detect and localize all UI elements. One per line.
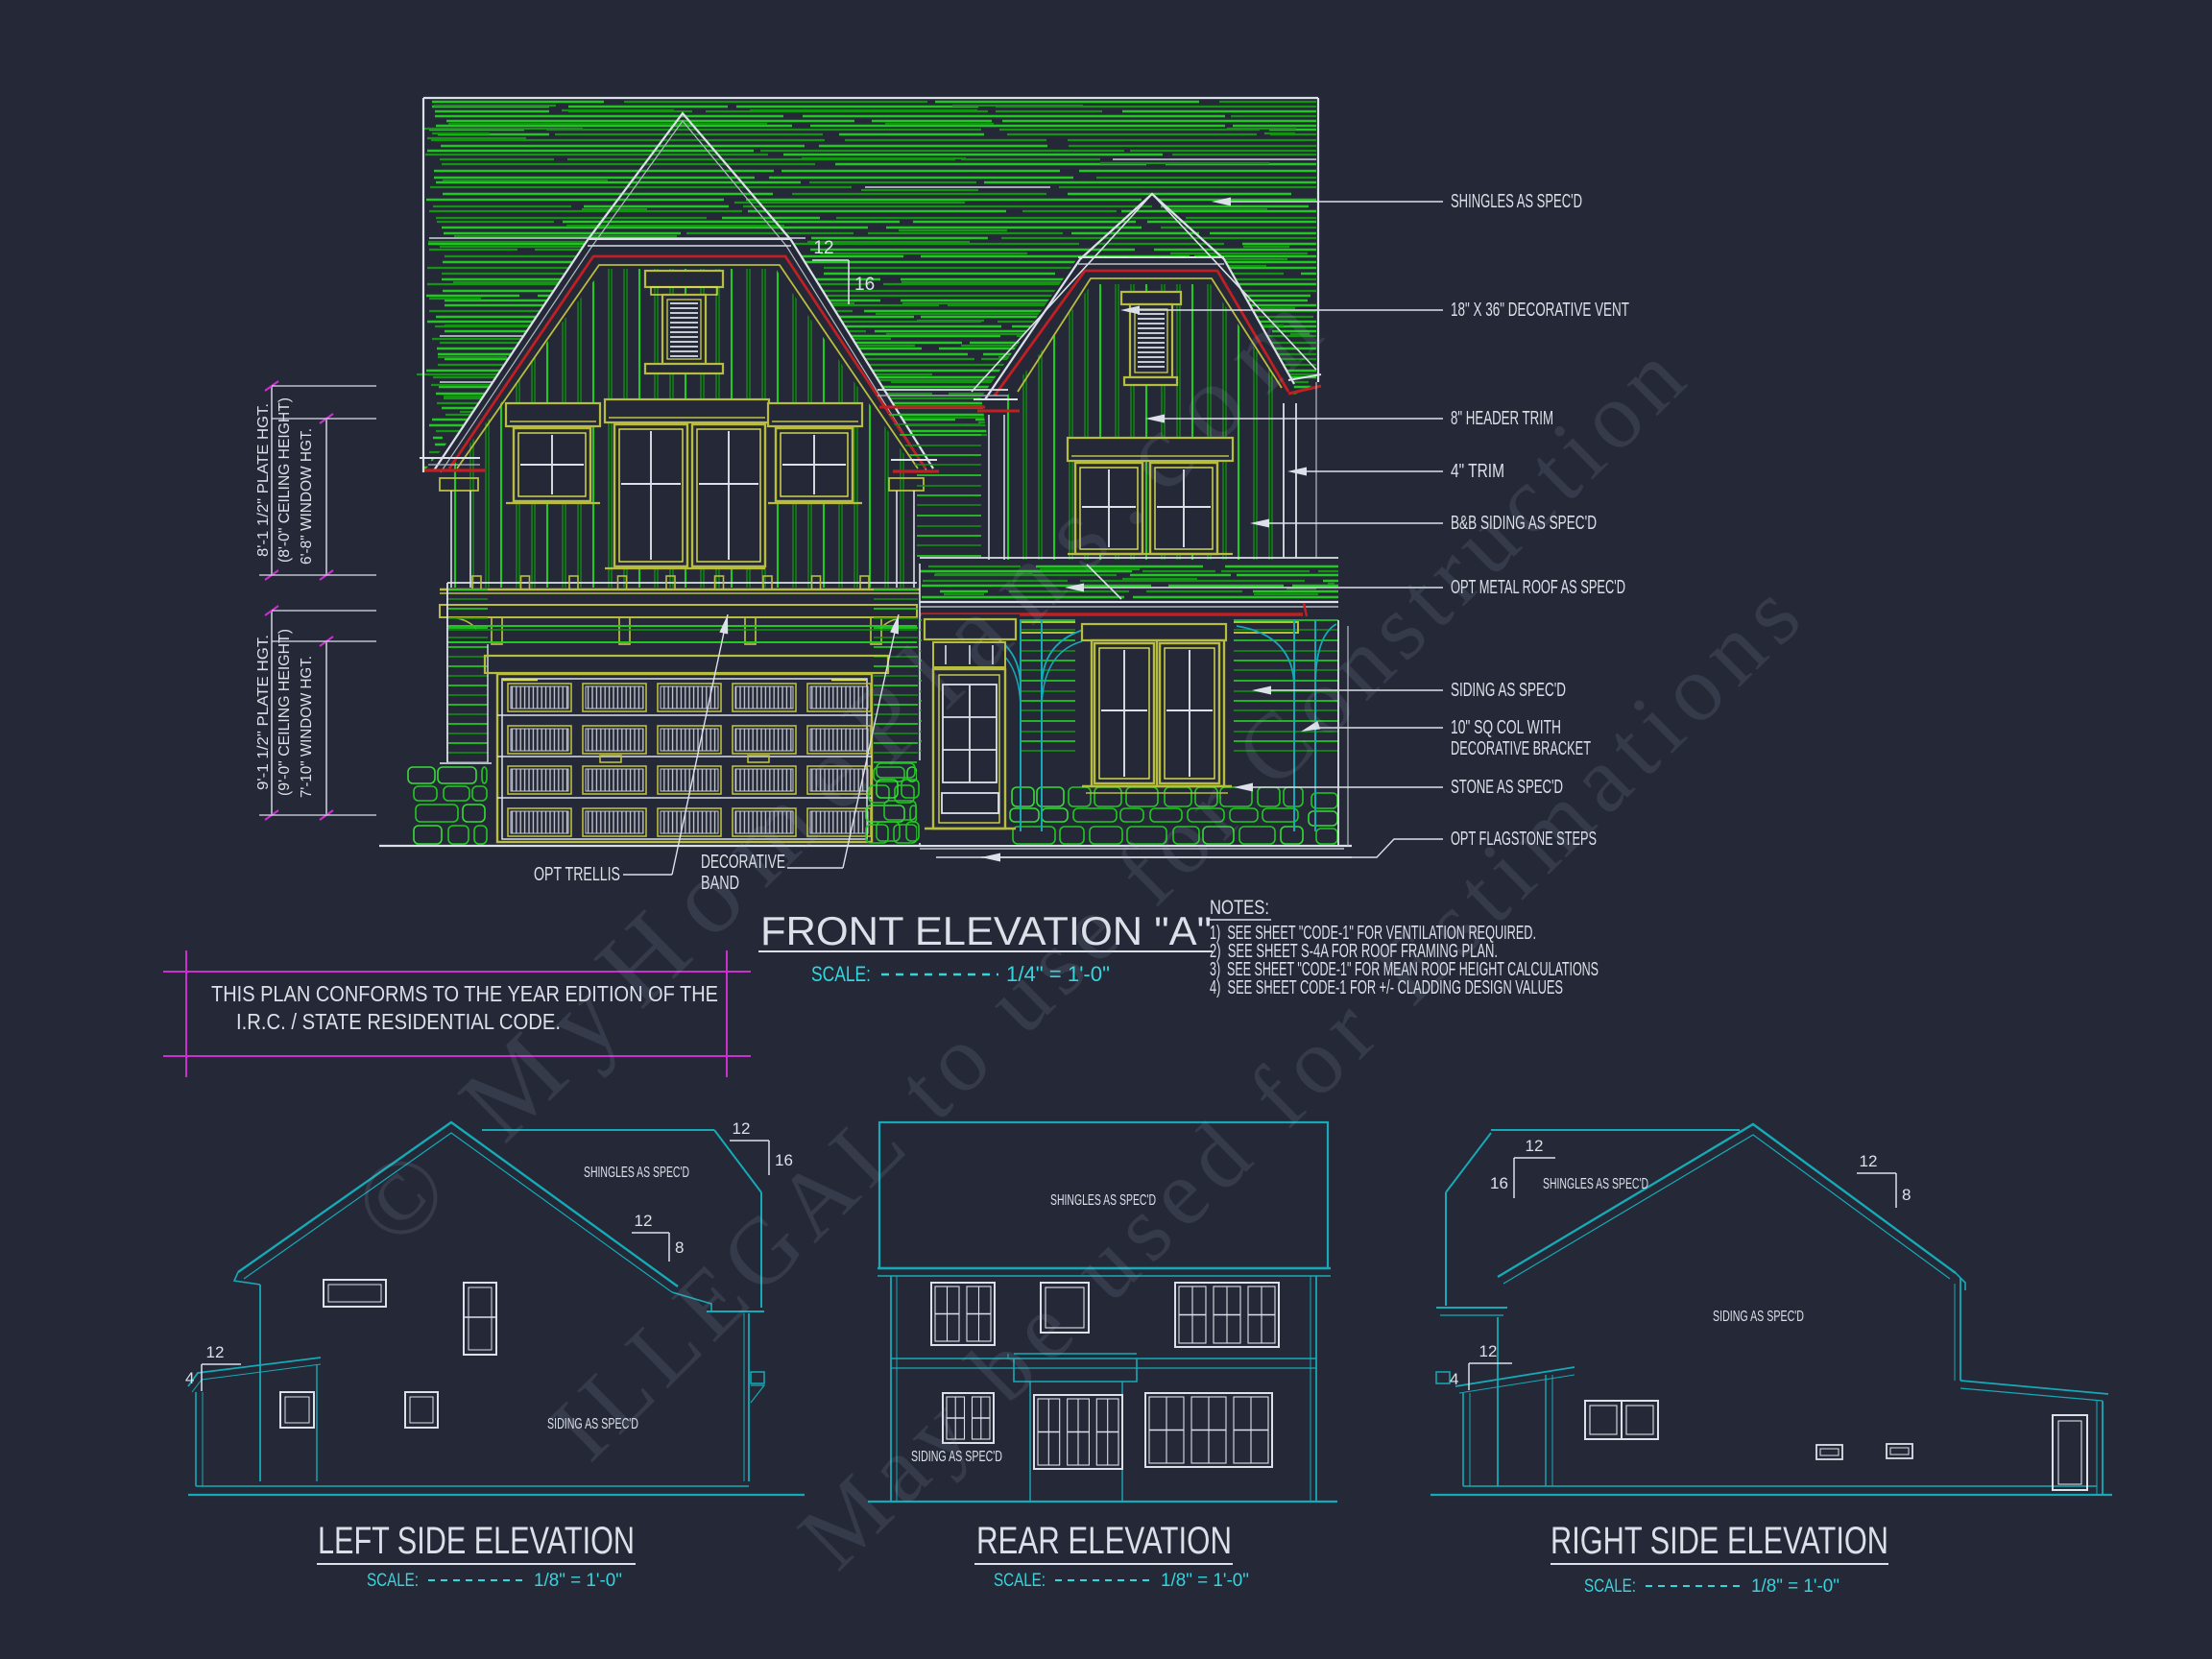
svg-text:(9'-0" CEILING HEIGHT): (9'-0" CEILING HEIGHT) xyxy=(276,629,293,796)
svg-text:8: 8 xyxy=(675,1238,684,1257)
svg-text:SIDING AS SPEC'D: SIDING AS SPEC'D xyxy=(1451,680,1566,701)
svg-text:NOTES:: NOTES: xyxy=(1210,897,1269,919)
svg-text:8: 8 xyxy=(1902,1186,1911,1204)
svg-text:18" X 36" DECORATIVE VENT: 18" X 36" DECORATIVE VENT xyxy=(1451,300,1629,321)
svg-text:REAR ELEVATION: REAR ELEVATION xyxy=(976,1520,1232,1562)
svg-text:12: 12 xyxy=(206,1343,225,1361)
svg-text:SHINGLES AS SPEC'D: SHINGLES AS SPEC'D xyxy=(1451,191,1582,212)
svg-text:7'-10" WINDOW HGT.: 7'-10" WINDOW HGT. xyxy=(299,656,315,798)
svg-text:1/8" = 1'-0": 1/8" = 1'-0" xyxy=(1751,1576,1839,1597)
svg-text:SCALE:: SCALE: xyxy=(994,1571,1046,1591)
svg-text:OPT TRELLIS: OPT TRELLIS xyxy=(534,864,620,885)
svg-text:SCALE:: SCALE: xyxy=(811,962,871,986)
svg-text:4: 4 xyxy=(1450,1370,1458,1388)
svg-text:SCALE:: SCALE: xyxy=(1584,1576,1636,1597)
svg-text:12: 12 xyxy=(635,1212,653,1230)
svg-text:LEFT SIDE ELEVATION: LEFT SIDE ELEVATION xyxy=(318,1520,635,1562)
svg-text:12: 12 xyxy=(813,238,833,258)
svg-text:12: 12 xyxy=(733,1119,751,1138)
svg-text:SHINGLES AS SPEC'D: SHINGLES AS SPEC'D xyxy=(584,1165,689,1181)
svg-text:SHINGLES AS SPEC'D: SHINGLES AS SPEC'D xyxy=(1543,1176,1648,1192)
svg-text:6'-8" WINDOW HGT.: 6'-8" WINDOW HGT. xyxy=(299,428,315,565)
svg-text:1/8" = 1'-0": 1/8" = 1'-0" xyxy=(1161,1571,1249,1591)
svg-text:16: 16 xyxy=(1490,1174,1508,1192)
svg-text:RIGHT SIDE ELEVATION: RIGHT SIDE ELEVATION xyxy=(1551,1520,1888,1562)
svg-text:SIDING AS SPEC'D: SIDING AS SPEC'D xyxy=(1713,1309,1804,1325)
svg-text:12: 12 xyxy=(1860,1152,1878,1170)
svg-text:12: 12 xyxy=(1526,1137,1544,1155)
svg-text:1/8" = 1'-0": 1/8" = 1'-0" xyxy=(534,1571,622,1591)
svg-text:16: 16 xyxy=(854,275,875,295)
svg-text:10" SQ COL WITH: 10" SQ COL WITH xyxy=(1451,717,1561,738)
svg-text:12: 12 xyxy=(1479,1342,1498,1360)
svg-text:SCALE:: SCALE: xyxy=(367,1571,419,1591)
svg-text:8'-1 1/2" PLATE HGT.: 8'-1 1/2" PLATE HGT. xyxy=(255,403,272,557)
svg-text:4: 4 xyxy=(185,1369,194,1387)
svg-text:9'-1 1/2" PLATE HGT.: 9'-1 1/2" PLATE HGT. xyxy=(255,635,272,790)
svg-text:(8'-0" CEILING HEIGHT): (8'-0" CEILING HEIGHT) xyxy=(276,397,293,563)
